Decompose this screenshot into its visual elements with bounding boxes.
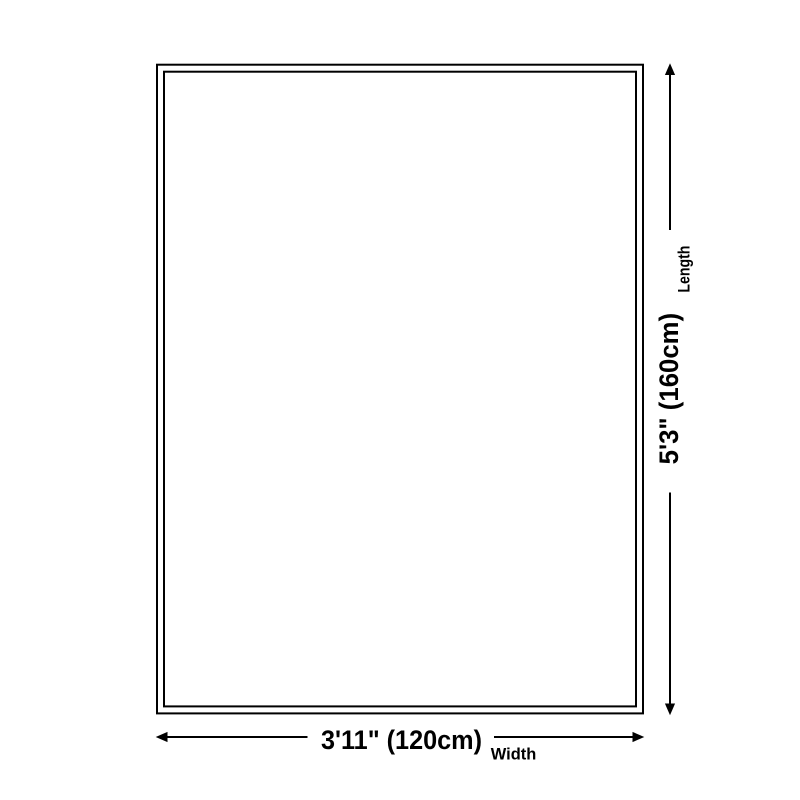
svg-text:3'11" (120cm): 3'11" (120cm) (321, 725, 482, 755)
svg-text:5'3" (160cm): 5'3" (160cm) (654, 313, 684, 465)
svg-text:Width: Width (491, 745, 537, 764)
svg-text:Length: Length (674, 246, 693, 293)
